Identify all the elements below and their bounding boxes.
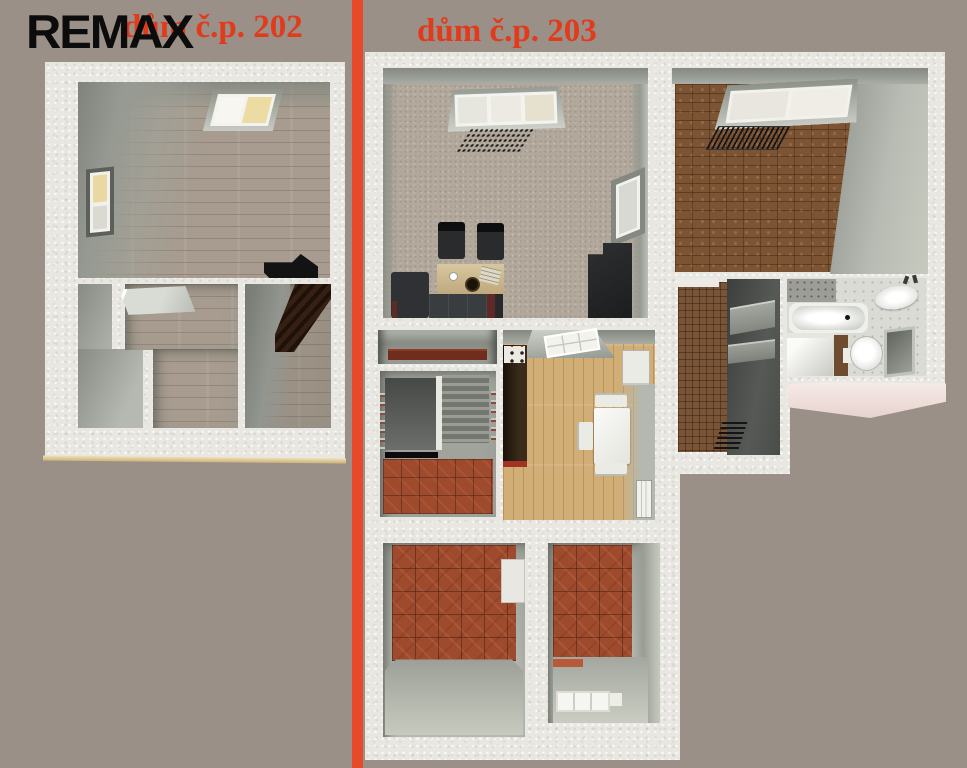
skylight-window-202 (210, 94, 276, 126)
wall-window-recess-living (611, 167, 645, 247)
sofa-living (391, 272, 503, 318)
house-divider-line (352, 0, 363, 768)
stair-room-wall-shading (245, 284, 290, 428)
house-202 (45, 62, 345, 459)
house-203 (365, 52, 945, 760)
wall-notch (501, 559, 525, 603)
kitchen-cabinet (622, 350, 650, 386)
room-203-hallway (378, 330, 497, 364)
radiator-kitchen (636, 480, 652, 518)
dining-table (594, 408, 630, 464)
wall-window-recess-202 (86, 167, 114, 238)
dining-chair (595, 393, 627, 407)
counter-end-panel (503, 461, 527, 467)
room-203-corridor (673, 276, 780, 458)
remax-logo: REMAX (26, 4, 192, 59)
room-202-middle-ext (153, 349, 238, 428)
radiator-top-right (706, 126, 791, 150)
stair-edge-marks (380, 393, 385, 449)
wall-window-202 (90, 171, 110, 233)
room-lower-gray-area (385, 658, 523, 735)
floorplan-canvas: dům č.p. 202 dům č.p. 203 REMAX (0, 0, 967, 768)
room-202-wall-shading (78, 82, 330, 278)
skylight-window-living (454, 91, 557, 127)
skylight-recess-living (446, 86, 565, 132)
skylight-pane (241, 97, 272, 123)
stair-edge-marks (491, 391, 496, 443)
skylight-pane (524, 94, 554, 121)
skylight-pane (789, 88, 849, 117)
sofa-seat (429, 294, 487, 318)
door-header (677, 278, 719, 287)
dining-chair (577, 422, 593, 450)
armchair (477, 223, 504, 260)
terracotta-floor (553, 545, 632, 657)
hallway-wardrobe (388, 349, 487, 360)
mirror-panel (884, 326, 915, 378)
sofa-armrest (495, 294, 503, 318)
skylight-recess-top-right (715, 78, 864, 130)
room-203-living (383, 68, 648, 318)
room-203-staircase (380, 371, 496, 517)
floor-window-small (610, 693, 622, 706)
skylight-pane (729, 91, 789, 120)
skylight-window-top-right (726, 85, 853, 124)
stair-flight-upper (385, 378, 436, 450)
room-202-stair-room (245, 284, 331, 428)
open-door-panel-202 (119, 286, 196, 316)
floor-window (556, 691, 610, 712)
sofa-accent (392, 301, 397, 318)
stair-room-tile-floor (383, 459, 493, 514)
heater-pipe (903, 276, 909, 285)
terracotta-floor (392, 545, 516, 661)
room-203-bathroom (787, 278, 926, 376)
stair-landing-edge (385, 452, 438, 458)
water-heater (873, 282, 919, 312)
dining-chair (595, 463, 627, 476)
armchair (438, 222, 465, 259)
window-pane (619, 179, 637, 234)
window-pane (93, 174, 107, 202)
skylight-pane (214, 97, 245, 123)
bathtub (789, 303, 868, 333)
shower-area (787, 338, 833, 376)
room-202-bottom-left-ext (78, 349, 143, 428)
room-203-bottom-right (548, 543, 660, 723)
room-202-attic (78, 82, 330, 278)
tv-cabinet (588, 243, 632, 318)
tile-highlight-strip (553, 659, 583, 667)
skylight-pane (491, 95, 521, 122)
label-house-203: dům č.p. 203 (417, 13, 597, 50)
sofa-accent (487, 294, 495, 318)
stair-flight-lower (442, 375, 489, 443)
bathroom-counter (787, 279, 836, 302)
living-ceiling-edge (383, 68, 648, 84)
room-203-kitchen-dining (503, 330, 655, 520)
stove-cooktop (504, 346, 525, 363)
wall-window-living (616, 175, 640, 239)
room-203-top-right (672, 68, 928, 274)
toilet (850, 336, 883, 371)
skylight-pane (458, 97, 488, 124)
lower-roof-pink (788, 382, 946, 418)
skylight-recess-202 (203, 89, 283, 131)
bathtub-drain (845, 315, 850, 320)
room-203-bottom-left (383, 543, 525, 737)
bathtub-basin (792, 306, 865, 330)
window-pane (93, 205, 107, 229)
